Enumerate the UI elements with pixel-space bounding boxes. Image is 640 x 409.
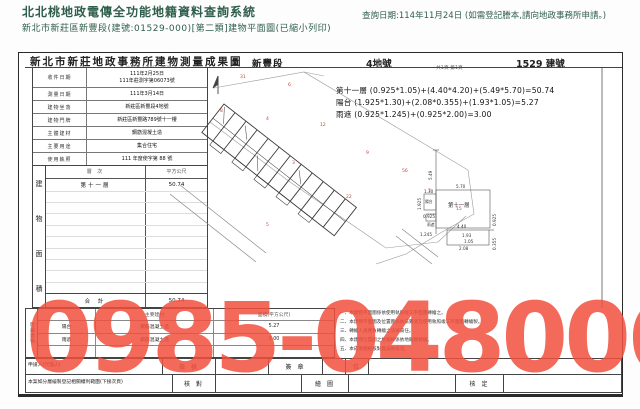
canopy-label: 雨遮 [427,222,435,227]
query-date: 查詢日期:114年11月24日 (如需登記謄本,請向地政事務所申請。) [362,9,606,21]
parcel-mark: 3 [292,160,295,166]
info-label: 建物坐落 [33,101,87,113]
info-label: 主要用途 [33,140,87,152]
info-label: 測量日期 [33,88,87,100]
parcel-mark: 12 [320,122,326,128]
phone-watermark: 0985-048006 [26,290,638,386]
parcel-mark: 9 [366,150,369,156]
parcel-mark: 31 [240,74,246,80]
side-char: 物 [36,214,43,224]
parcel-mark: 5 [266,222,269,228]
parcel-boundary [210,72,474,264]
dim-label: 4.40 [457,224,467,229]
dim-label: 1.30 [424,189,434,194]
unit-label: 第十一層 [448,201,470,209]
parcel-mark: 22 [346,194,352,200]
side-char: 面 [36,249,43,259]
dim-label: 0.355 [492,238,497,250]
north-arrow-icon [213,76,218,94]
page: 北北桃地政電傳全功能地籍資料查詢系統 新北市新莊區新豐段(建號:01529-00… [0,0,640,409]
info-label: 建物門牌 [33,114,87,126]
dim-label: 0.925 [423,214,435,219]
parcel-mark: 6 [288,82,291,88]
site-plan: 31 6 8 4 12 9 56 7 15 3 22 5 5.49 5.70 第… [170,66,610,308]
info-value-line: 111年莊測字第06073號 [119,78,174,85]
level-cell: 第十一層 [46,179,146,191]
dim-label: 1.93 [462,233,472,238]
dim-label: 2.08 [459,246,469,251]
balcony-label: 陽台 [425,199,433,204]
dim-label: 1.245 [420,232,432,237]
info-value-line: 111年2月25日 [130,71,164,78]
parcel-mark: 56 [402,168,408,174]
info-label: 主體建材 [33,127,87,139]
road-lines [170,185,438,264]
dim-label: 1.925 [417,198,422,210]
parcel-mark: 4 [266,116,269,122]
dim-label: 5.70 [456,184,466,189]
col-header-level: 層 次 [46,166,146,178]
info-label: 收件日期 [33,68,87,87]
dim-label: 1.05 [464,239,474,244]
building-outline [199,104,357,240]
side-char: 建 [36,179,43,189]
parcel-mark: 8 [220,108,223,114]
dim-label: 5.49 [428,170,433,180]
document-subtitle: 新北市新莊區新豐段(建號:01529-000)[第二類]建物平面圖(已縮小列印) [22,21,331,34]
unit-detail-drawing [424,150,494,245]
dim-label: 0.925 [492,214,497,226]
system-title: 北北桃地政電傳全功能地籍資料查詢系統 [22,3,256,20]
